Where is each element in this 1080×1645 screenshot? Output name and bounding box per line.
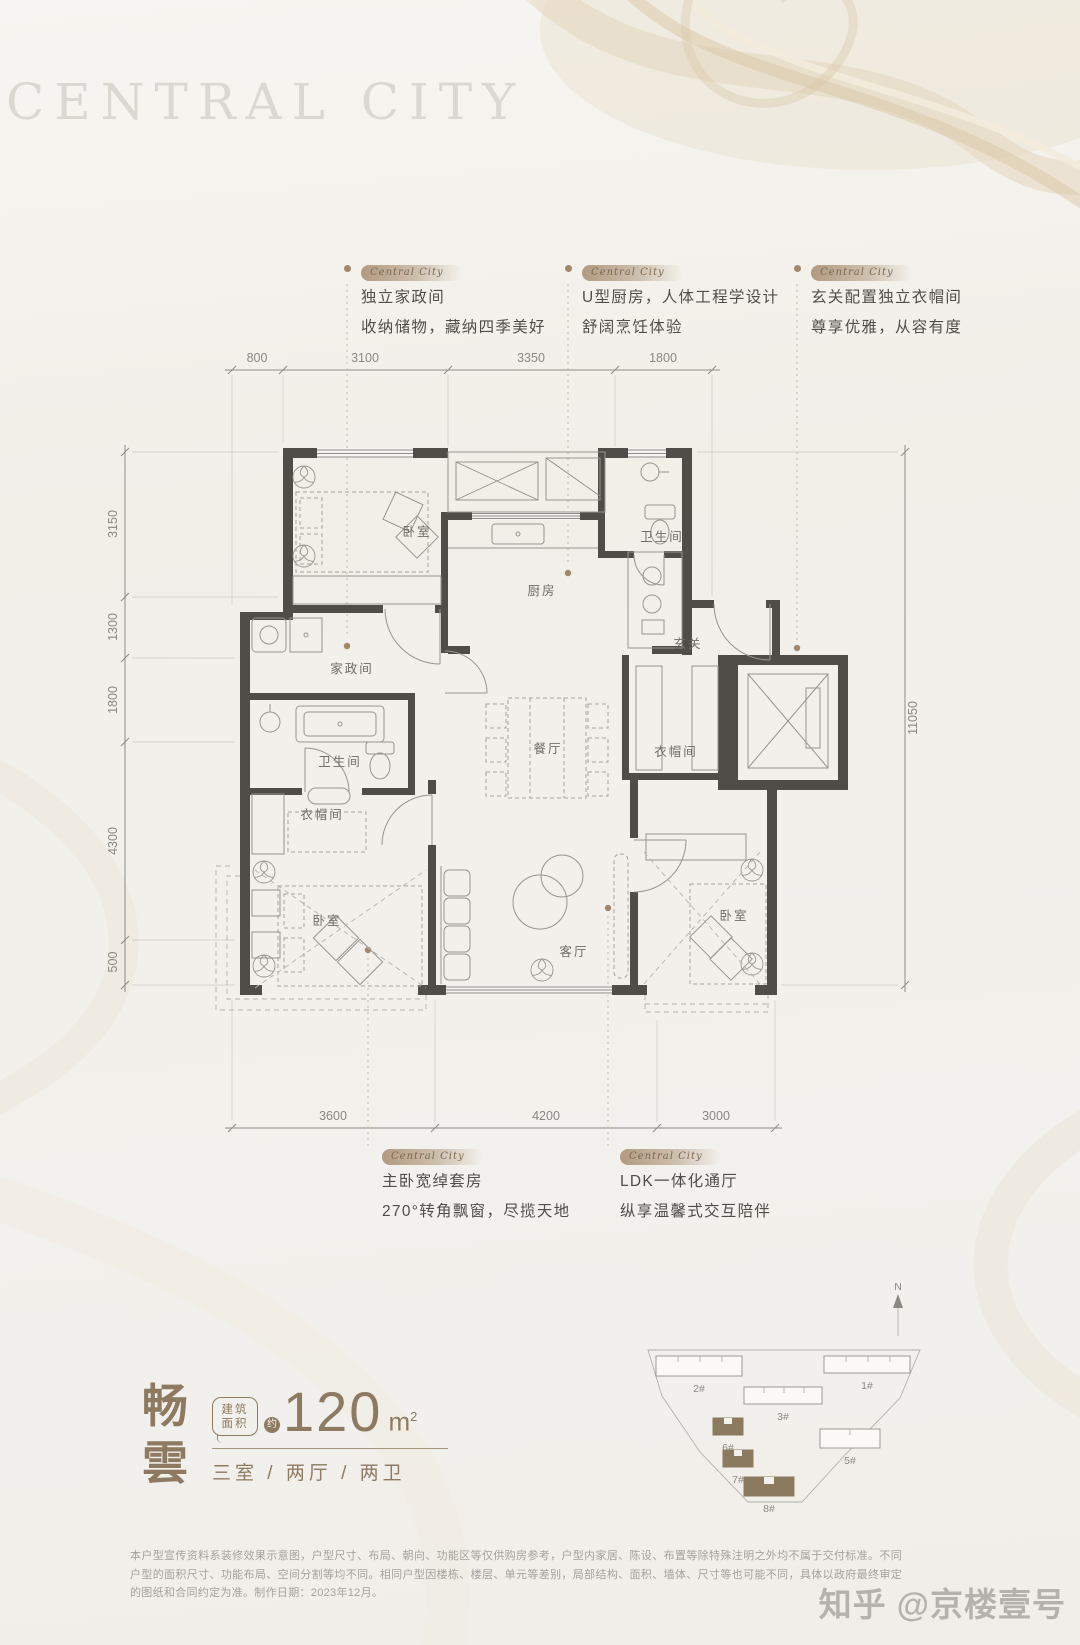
room-label-laundry: 家政间 — [330, 661, 374, 676]
callout-badge: Central City — [361, 265, 462, 281]
area-unit-sup: 2 — [410, 1409, 417, 1424]
building-label: 6# — [722, 1442, 734, 1454]
callout-dot-icon — [565, 265, 572, 272]
dim-left-3150: 3150 — [106, 510, 120, 538]
floorplan-walls — [240, 448, 848, 995]
siteplan-building-1: 1# — [824, 1356, 910, 1392]
dim-left-1800: 1800 — [106, 686, 120, 714]
siteplan-building-2: 2# — [656, 1356, 742, 1395]
callout-foyer: Central City 玄关配置独立衣帽间 尊享优雅，从容有度 — [797, 262, 1077, 341]
north-arrow-icon: N — [893, 1281, 903, 1336]
unit-name: 畅 雲 — [142, 1378, 190, 1492]
floorplan-furniture — [252, 463, 828, 988]
siteplan-building-6: 6# — [713, 1418, 743, 1454]
unit-area-block: 建筑 面积 约 120 m2 三室 / 两厅 / 两卫 — [212, 1378, 448, 1492]
dim-top-3100: 3100 — [351, 351, 379, 365]
dim-top-1800: 1800 — [649, 351, 677, 365]
room-label-cloak-right: 衣帽间 — [654, 744, 698, 759]
area-label-line2: 面积 — [222, 1417, 249, 1431]
building-label: 7# — [732, 1474, 744, 1486]
room-label-foyer: 玄关 — [673, 636, 702, 651]
siteplan-building-5: 5# — [820, 1429, 880, 1467]
dim-left-4300: 4300 — [106, 827, 120, 855]
room-label-kitchen: 厨房 — [527, 583, 556, 598]
area-unit: m2 — [388, 1403, 417, 1436]
dim-top-800: 800 — [247, 351, 268, 365]
unit-name-char-1: 畅 — [142, 1378, 190, 1435]
siteplan-building-3: 3# — [744, 1387, 822, 1423]
floorplan-doors — [305, 555, 770, 892]
dim-top-3350: 3350 — [517, 351, 545, 365]
room-label-master-bedroom: 卧室 — [312, 913, 341, 928]
callout-badge: Central City — [582, 265, 683, 281]
area-label-bubble: 建筑 面积 — [212, 1397, 258, 1436]
building-label: 5# — [844, 1455, 856, 1467]
unit-specs: 三室 / 两厅 / 两卫 — [212, 1458, 448, 1485]
dim-left-500: 500 — [106, 952, 120, 973]
callout-connectors — [344, 284, 800, 1146]
unit-name-char-2: 雲 — [142, 1435, 190, 1492]
room-label-bedroom-top-left: 卧室 — [402, 524, 431, 539]
room-label-living: 客厅 — [559, 944, 588, 959]
room-label-cloak-left: 衣帽间 — [300, 807, 344, 822]
watermark-zhihu: 知乎 @京楼壹号 — [819, 1578, 1066, 1626]
approx-circle: 约 — [264, 1417, 280, 1433]
callout-line: 玄关配置独立衣帽间 — [811, 285, 1077, 311]
room-labels: 卧室 厨房 卫生间 家政间 玄关 餐厅 卫生间 衣帽间 卧室 客厅 卧室 衣帽间 — [300, 524, 748, 959]
siteplan-building-8: 8# — [744, 1477, 794, 1515]
floorplan-windows — [216, 448, 768, 1012]
site-plan: N 2# 1# 3# 6# — [648, 1281, 920, 1515]
building-label: 8# — [763, 1503, 775, 1515]
poster-page: CENTRAL CITY — [0, 0, 1080, 1645]
room-label-dining: 餐厅 — [533, 741, 562, 756]
callout-ldk: Central City LDK一体化通厅 纵享温馨式交互陪伴 — [606, 1146, 886, 1225]
callout-badge: Central City — [620, 1149, 721, 1165]
callout-line: 尊享优雅，从容有度 — [811, 315, 1077, 341]
dim-bottom-3600: 3600 — [319, 1109, 347, 1123]
title-divider — [212, 1448, 448, 1449]
unit-title-block: 畅 雲 建筑 面积 约 120 m2 三室 / 两厅 / 两卫 — [142, 1378, 448, 1492]
callout-dot-icon — [344, 265, 351, 272]
callout-badge: Central City — [382, 1149, 483, 1165]
room-label-bath-top-right: 卫生间 — [640, 530, 684, 544]
area-label-line1: 建筑 — [222, 1403, 249, 1417]
room-label-bath-left: 卫生间 — [318, 755, 362, 769]
building-label: 1# — [861, 1380, 873, 1392]
dimension-annotations: 800 3100 3350 1800 3150 1300 1800 4300 5… — [106, 351, 920, 1132]
dim-bottom-3000: 3000 — [702, 1109, 730, 1123]
siteplan-building-7: 7# — [723, 1450, 753, 1486]
disclaimer-text: 本户型宣传资料系装修效果示意图，户型尺寸、布局、朝向、功能区等仅供购房参考，户型… — [130, 1547, 902, 1603]
callout-dot-icon — [794, 265, 801, 272]
area-value: 120 — [283, 1388, 382, 1436]
watermark-central-city: CENTRAL CITY — [6, 72, 525, 132]
north-label: N — [894, 1281, 902, 1293]
building-label: 2# — [693, 1383, 705, 1395]
callout-badge: Central City — [811, 265, 912, 281]
dim-right-11050: 11050 — [906, 701, 920, 735]
room-label-bedroom-bottom-right: 卧室 — [719, 908, 748, 923]
callout-line: LDK一体化通厅 — [620, 1169, 886, 1195]
dim-left-1300: 1300 — [106, 613, 120, 641]
dimension-extension-lines — [132, 375, 898, 1121]
callout-line: 纵享温馨式交互陪伴 — [620, 1199, 886, 1225]
area-unit-m: m — [388, 1407, 410, 1437]
dim-bottom-4200: 4200 — [532, 1109, 560, 1123]
beige-glow — [540, 0, 1080, 170]
building-label: 3# — [777, 1411, 789, 1423]
